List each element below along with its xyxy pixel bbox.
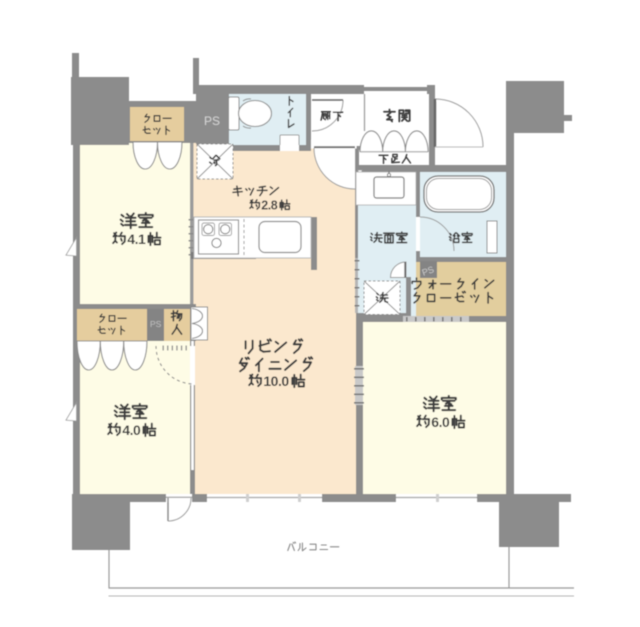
svg-text:4.0: 4.0 <box>122 422 141 438</box>
svg-text:6.0: 6.0 <box>431 414 450 430</box>
svg-text:10.0: 10.0 <box>263 373 289 389</box>
svg-text:2.8: 2.8 <box>261 199 277 213</box>
svg-text:PS: PS <box>204 114 220 128</box>
svg-text:PS: PS <box>150 319 162 329</box>
svg-text:4.1: 4.1 <box>127 231 146 247</box>
